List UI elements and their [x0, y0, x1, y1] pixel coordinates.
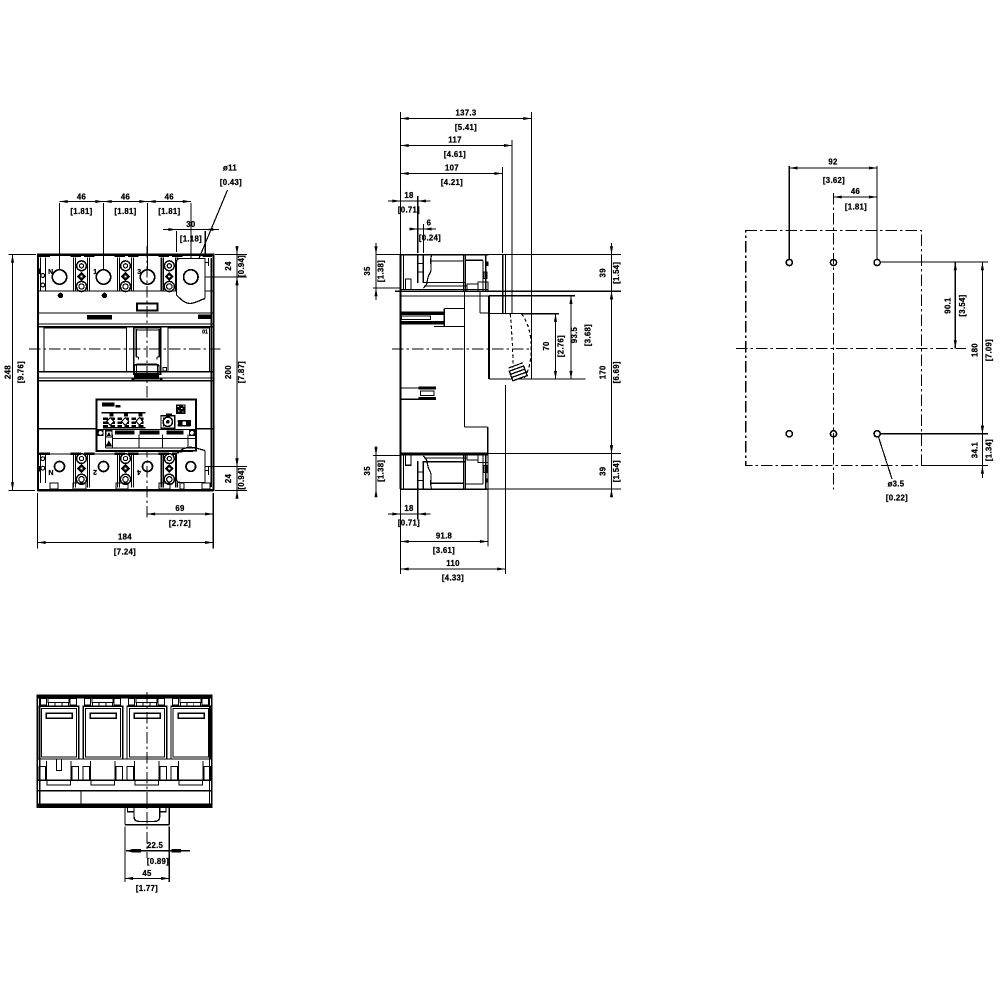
svg-text:184: 184 — [118, 533, 132, 542]
svg-text:[3.61]: [3.61] — [433, 546, 455, 555]
svg-text:[1.38]: [1.38] — [377, 460, 386, 482]
svg-text:[1.38]: [1.38] — [377, 260, 386, 282]
svg-text:2: 2 — [93, 468, 97, 475]
svg-text:N: N — [48, 269, 53, 276]
svg-text:180: 180 — [970, 343, 979, 357]
svg-text:[3.62]: [3.62] — [823, 176, 845, 185]
svg-text:35: 35 — [363, 266, 372, 276]
svg-text:39: 39 — [599, 466, 608, 476]
svg-text:6: 6 — [427, 219, 432, 228]
svg-text:24: 24 — [224, 261, 233, 271]
svg-text:[4.33]: [4.33] — [442, 574, 464, 583]
svg-text:90.1: 90.1 — [944, 297, 953, 314]
svg-text:18: 18 — [404, 504, 414, 513]
svg-text:[0.71]: [0.71] — [398, 519, 420, 528]
svg-text:4: 4 — [137, 468, 141, 475]
svg-text:[1.81]: [1.81] — [158, 207, 180, 216]
svg-text:92: 92 — [828, 158, 838, 167]
svg-text:[7.87]: [7.87] — [237, 361, 246, 383]
svg-text:39: 39 — [599, 268, 608, 278]
svg-text:[1.54]: [1.54] — [612, 460, 621, 482]
svg-text:[4.21]: [4.21] — [441, 178, 463, 187]
svg-text:107: 107 — [445, 164, 459, 173]
svg-text:[1.34]: [1.34] — [984, 439, 993, 461]
svg-text:[9.76]: [9.76] — [17, 361, 26, 383]
svg-text:22.5: 22.5 — [147, 841, 164, 850]
svg-text:[0.43]: [0.43] — [220, 178, 242, 187]
svg-text:3: 3 — [137, 269, 141, 276]
svg-text:[6.69]: [6.69] — [612, 361, 621, 383]
svg-text:[4.61]: [4.61] — [444, 150, 466, 159]
svg-text:170: 170 — [599, 365, 608, 379]
svg-text:[0.89]: [0.89] — [147, 857, 169, 866]
svg-text:[1.81]: [1.81] — [114, 207, 136, 216]
svg-text:248: 248 — [4, 365, 13, 379]
svg-text:35: 35 — [363, 466, 372, 476]
svg-text:117: 117 — [448, 136, 461, 145]
svg-text:N: N — [48, 468, 53, 475]
svg-text:18: 18 — [404, 191, 414, 200]
svg-text:[7.24]: [7.24] — [114, 548, 136, 557]
svg-text:[2.76]: [2.76] — [557, 335, 566, 357]
svg-text:34.1: 34.1 — [970, 441, 979, 458]
svg-text:ø3.5: ø3.5 — [888, 480, 905, 489]
svg-text:69: 69 — [175, 504, 185, 513]
svg-text:1: 1 — [93, 269, 97, 276]
svg-text:93.5: 93.5 — [570, 326, 579, 343]
svg-text:[0.24]: [0.24] — [419, 233, 441, 242]
svg-text:110: 110 — [446, 559, 460, 568]
svg-text:[5.41]: [5.41] — [455, 123, 477, 132]
svg-text:46: 46 — [165, 192, 175, 201]
svg-text:[2.72]: [2.72] — [169, 519, 191, 528]
svg-text:24: 24 — [224, 474, 233, 484]
svg-text:[0.94]: [0.94] — [237, 255, 246, 277]
svg-text:[0.22]: [0.22] — [886, 494, 908, 503]
svg-text:[7.09]: [7.09] — [984, 339, 993, 361]
svg-text:46: 46 — [77, 192, 87, 201]
svg-text:[1.81]: [1.81] — [845, 203, 867, 212]
svg-text:[0.94]: [0.94] — [237, 467, 246, 489]
svg-text:70: 70 — [542, 341, 551, 351]
svg-text:ø11: ø11 — [223, 164, 237, 173]
svg-text:01: 01 — [202, 330, 208, 336]
svg-text:91.8: 91.8 — [436, 532, 453, 541]
svg-text:[3.54]: [3.54] — [958, 294, 967, 316]
svg-text:[1.77]: [1.77] — [136, 884, 158, 893]
svg-text:[0.71]: [0.71] — [398, 206, 420, 215]
svg-text:45: 45 — [142, 869, 152, 878]
svg-text:30: 30 — [186, 220, 196, 229]
svg-text:[1.81]: [1.81] — [70, 207, 92, 216]
svg-text:[3.68]: [3.68] — [584, 324, 593, 346]
svg-text:200: 200 — [224, 365, 233, 379]
svg-text:46: 46 — [851, 187, 861, 196]
svg-text:46: 46 — [121, 192, 131, 201]
svg-text:[1.18]: [1.18] — [180, 235, 202, 244]
svg-text:137.3: 137.3 — [455, 109, 476, 118]
svg-text:[1.54]: [1.54] — [612, 262, 621, 284]
